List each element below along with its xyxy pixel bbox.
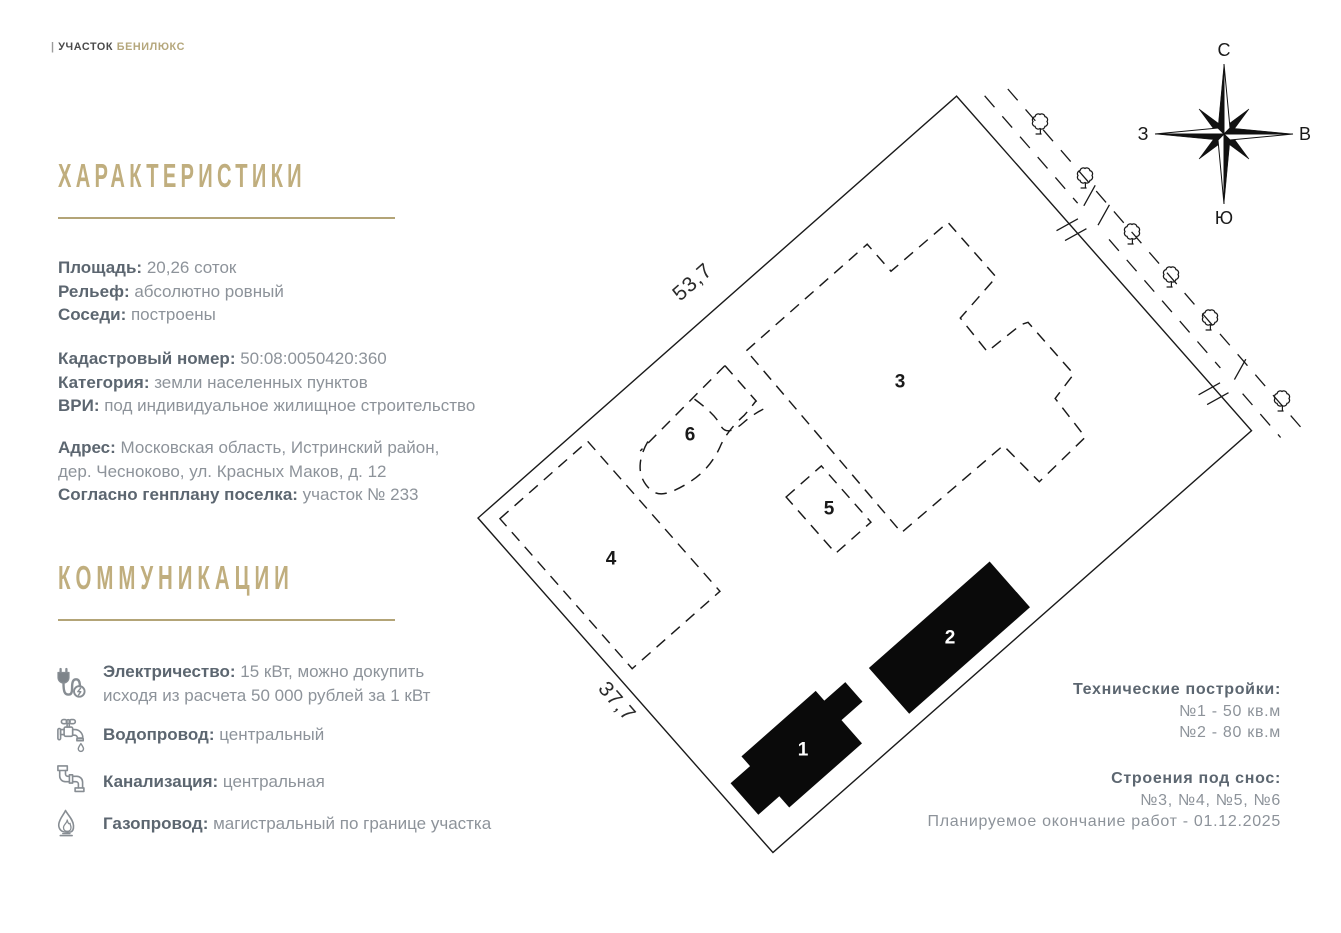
svg-text:4: 4 bbox=[606, 549, 617, 570]
svg-text:5: 5 bbox=[824, 499, 835, 520]
svg-text:С: С bbox=[1218, 40, 1231, 60]
svg-text:2: 2 bbox=[945, 628, 956, 649]
svg-text:1: 1 bbox=[798, 740, 809, 761]
svg-text:Ю: Ю bbox=[1215, 208, 1233, 228]
svg-text:В: В bbox=[1299, 124, 1311, 144]
svg-text:З: З bbox=[1138, 124, 1149, 144]
svg-text:6: 6 bbox=[685, 425, 696, 446]
svg-text:3: 3 bbox=[895, 372, 906, 393]
svg-text:53,7: 53,7 bbox=[668, 259, 717, 306]
